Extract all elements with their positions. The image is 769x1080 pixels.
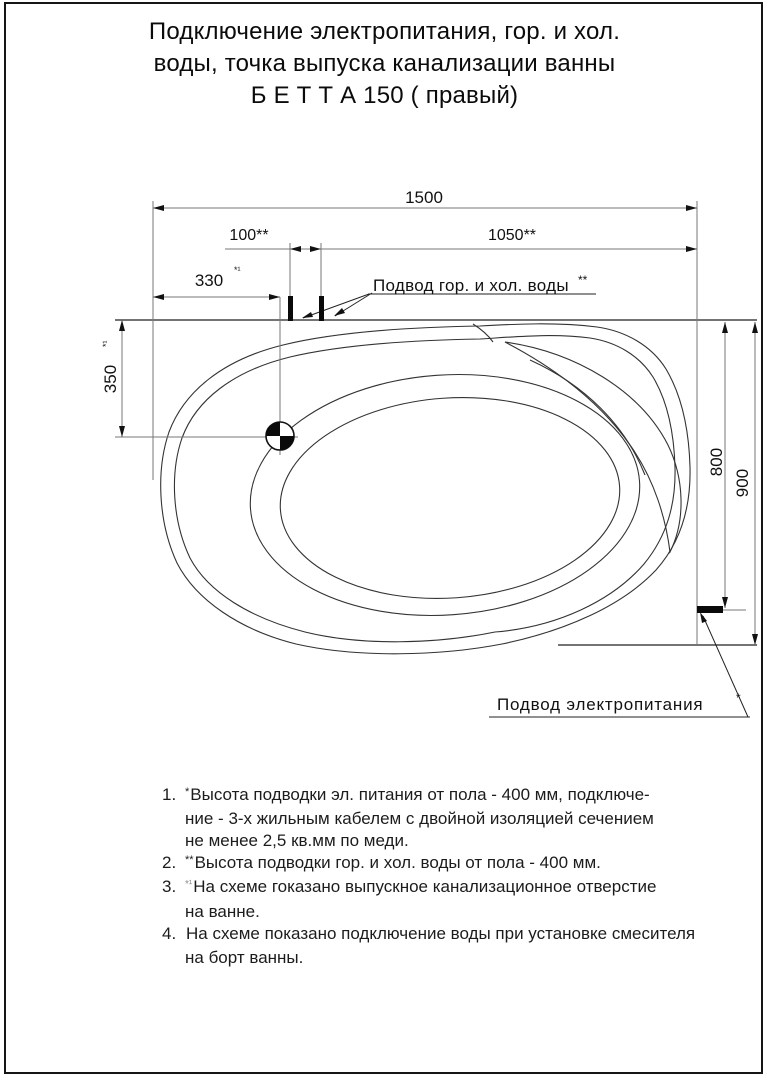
note-number: 4. <box>162 923 185 969</box>
note-body: *Высота подводки эл. питания от пола - 4… <box>185 784 752 852</box>
arrow-330-left <box>153 294 164 300</box>
drain-symbol <box>266 422 294 450</box>
arrow-1500-left <box>153 205 164 211</box>
dim-text-1500: 1500 <box>405 188 443 207</box>
tub-bowl-outer <box>242 362 648 629</box>
note-number: 1. <box>162 784 185 852</box>
water-pipe-2 <box>319 296 324 321</box>
note-body: На схеме показано подключение воды при у… <box>185 923 752 969</box>
reference-lines <box>115 320 757 645</box>
arrow-water-1 <box>302 312 313 318</box>
dimension-lines <box>115 201 755 645</box>
power-connection-mark <box>697 606 723 613</box>
water-supply-label: Подвод гор. и хол. воды <box>373 276 569 295</box>
arrow-900-bottom <box>752 634 758 645</box>
arrow-100-left <box>290 246 301 252</box>
dim-text-800: 800 <box>707 448 726 476</box>
tub-rim-inner-edge <box>174 336 675 642</box>
note-marker: ** <box>185 854 194 866</box>
drain-quadrant-nw <box>266 422 280 436</box>
dim-text-100: 100** <box>229 227 268 244</box>
arrow-1050-right <box>686 246 697 252</box>
power-leader <box>703 616 748 717</box>
dim-text-330: 330 <box>195 271 223 290</box>
note-line: на ванне. <box>185 901 752 923</box>
note-body: **Высота подводки гор. и хол. воды от по… <box>185 852 752 876</box>
note-line: На схеме показано подключение воды при у… <box>185 923 752 947</box>
note-line: *¹На схеме гоказано выпускное канализаци… <box>185 876 752 901</box>
note-item-2: 2. **Высота подводки гор. и хол. воды от… <box>162 852 752 876</box>
water-pipe-1 <box>288 296 293 321</box>
dim-text-330-tol: *¹ <box>234 265 241 275</box>
power-supply-label: Подвод электропитания <box>497 695 703 714</box>
dim-text-350-tol: *¹ <box>101 340 111 347</box>
note-text: Высота подводки гор. и хол. воды от пола… <box>195 853 601 872</box>
arrow-water-2 <box>334 308 345 316</box>
note-number: 2. <box>162 852 185 876</box>
tub-wing-slot <box>530 360 645 475</box>
note-text: Высота подводки эл. питания от пола - 40… <box>190 785 649 804</box>
arrow-330-right <box>269 294 280 300</box>
note-text: На схеме показано подключение воды при у… <box>186 924 695 943</box>
note-line: на борт ванны. <box>185 947 752 969</box>
tub-corner-wing <box>505 342 681 552</box>
note-body: *¹На схеме гоказано выпускное канализаци… <box>185 876 752 923</box>
water-supply-label-sup: ** <box>578 273 588 287</box>
bathtub-outline <box>161 324 690 654</box>
arrow-100-right <box>310 246 321 252</box>
note-marker: * <box>185 786 189 798</box>
arrow-power <box>700 612 707 623</box>
arrow-1500-right <box>686 205 697 211</box>
arrow-350-bottom <box>119 426 125 437</box>
note-line: не менее 2,5 кв.мм по меди. <box>185 830 752 852</box>
note-line: **Высота подводки гор. и хол. воды от по… <box>185 852 752 876</box>
arrow-350-top <box>119 320 125 331</box>
arrow-800-top <box>722 322 728 333</box>
note-text: На схеме гоказано выпускное канализацион… <box>193 877 656 896</box>
tub-bowl-inner <box>273 386 626 609</box>
drain-quadrant-se <box>280 436 294 450</box>
tub-outer-rim <box>161 324 690 654</box>
note-item-3: 3. *¹На схеме гоказано выпускное канализ… <box>162 876 752 923</box>
dim-text-350: 350 <box>101 365 120 393</box>
note-item-4: 4. На схеме показано подключение воды пр… <box>162 923 752 969</box>
note-marker: *¹ <box>185 879 192 890</box>
connection-points <box>266 296 723 613</box>
arrow-900-top <box>752 322 758 333</box>
dim-text-900: 900 <box>733 469 752 497</box>
page: Подключение электропитания, гор. и хол. … <box>0 0 769 1080</box>
note-item-1: 1. *Высота подводки эл. питания от пола … <box>162 784 752 852</box>
note-line: ние - 3-х жильным кабелем с двойной изол… <box>185 808 752 830</box>
notes-list: 1. *Высота подводки эл. питания от пола … <box>162 784 752 969</box>
note-number: 3. <box>162 876 185 923</box>
note-line: *Высота подводки эл. питания от пола - 4… <box>185 784 752 808</box>
dim-text-1050: 1050** <box>488 227 536 244</box>
power-supply-label-sup: * <box>736 691 741 705</box>
